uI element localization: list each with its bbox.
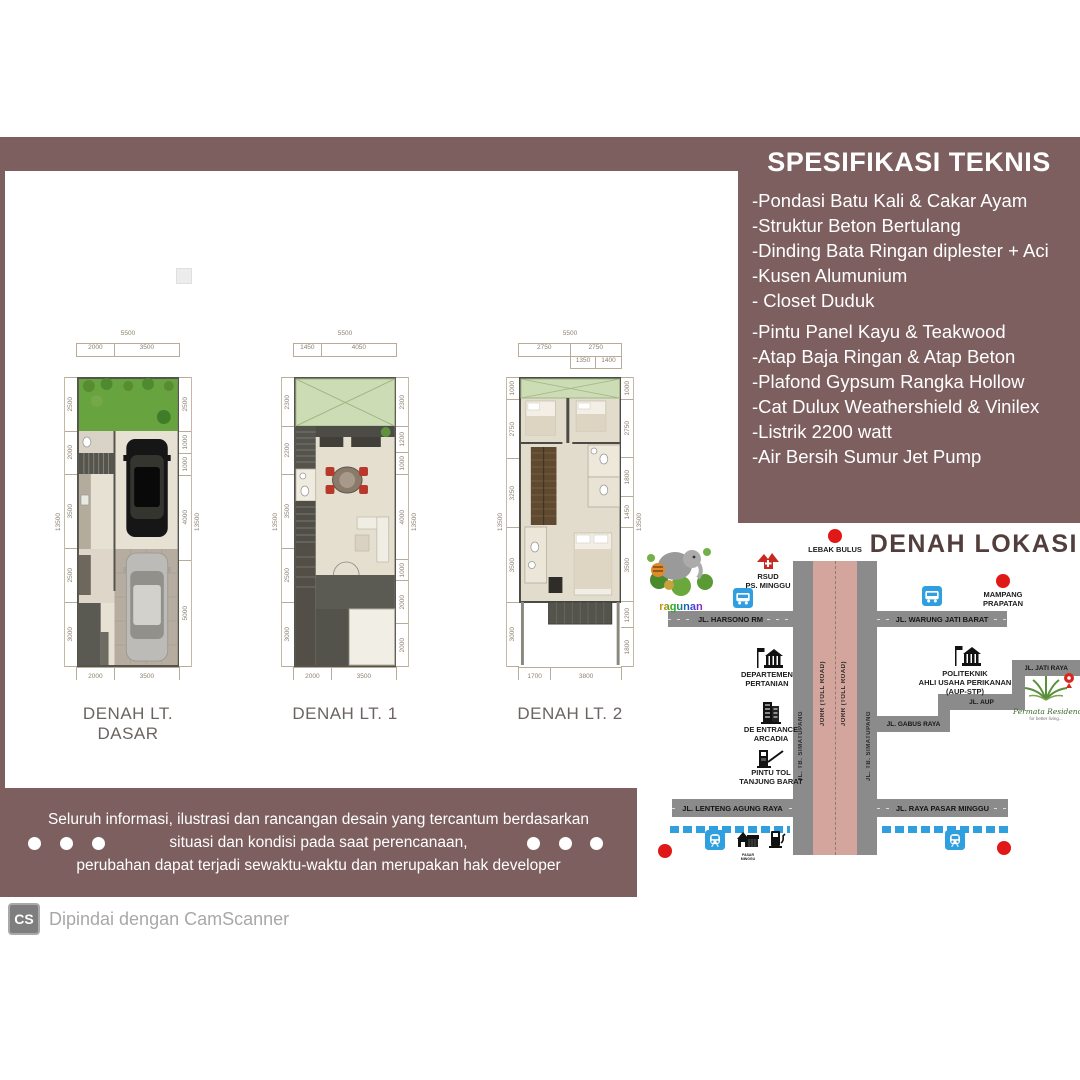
dimension-total-height: 13500 bbox=[496, 377, 507, 667]
permata-residence-name: Permata Residence bbox=[1013, 707, 1079, 716]
decor-dot bbox=[527, 837, 540, 850]
label-de-entrance: DE ENTRANCE ARCADIA bbox=[741, 725, 801, 743]
dimension-label: 5000 bbox=[179, 560, 191, 667]
road-tb-simatupang: JORR (TOLL ROAD) JORR (TOLL ROAD) JL. TB… bbox=[793, 561, 877, 855]
plan-caption-level2: DENAH LT. 2 bbox=[496, 704, 644, 724]
dimension-label: 1700 bbox=[518, 667, 550, 680]
permata-residence-tagline: for better living... bbox=[1013, 716, 1079, 721]
spec-panel: SPESIFIKASI TEKNIS -Pondasi Batu Kali & … bbox=[738, 137, 1080, 523]
road-raya-pasar-minggu: JL. RAYA PASAR MINGGU bbox=[877, 799, 1008, 817]
dimension-label: 2750 bbox=[518, 344, 570, 357]
road-label-tb-simatupang: JL. TB. SIMATUPANG bbox=[866, 711, 872, 781]
dimension-label: 1200 bbox=[621, 601, 633, 627]
dimension-label: 1350 bbox=[570, 357, 595, 369]
road-label-pasar-minggu: JL. RAYA PASAR MINGGU bbox=[893, 804, 992, 813]
dimension-total-width: 5500 bbox=[76, 330, 180, 344]
station-dot-left bbox=[658, 844, 672, 858]
dimension-label: 2750 bbox=[507, 399, 519, 458]
dimension-label: 1800 bbox=[621, 627, 633, 667]
road-label-harsono: JL. HARSONO RM bbox=[695, 615, 766, 624]
dimension-label: 3000 bbox=[507, 602, 519, 667]
label-lebak-bulus: LEBAK BULUS bbox=[800, 545, 870, 554]
label-mampang: MAMPANG PRAPATAN bbox=[971, 590, 1035, 608]
dimension-label: 1400 bbox=[595, 357, 622, 369]
dimension-label: 1000 bbox=[621, 377, 633, 399]
label-pintu-tol: PINTU TOL TANJUNG BARAT bbox=[737, 768, 805, 786]
left-accent-strip bbox=[0, 137, 5, 788]
spec-item: - Closet Duduk bbox=[752, 288, 1070, 313]
road-aup: JL. AUP bbox=[938, 694, 1025, 710]
rsud-icon bbox=[755, 550, 781, 572]
ragunan-logo: ragunan bbox=[645, 540, 717, 613]
dimension-label: 2000 bbox=[65, 431, 77, 474]
dimension-bottom-row: 17003800 bbox=[518, 667, 622, 680]
dimension-label: 2750 bbox=[570, 344, 623, 357]
gas-station-icon bbox=[769, 829, 787, 848]
dimension-top-sub-row: 13501400 bbox=[570, 357, 622, 369]
dimension-total-height: 13500 bbox=[54, 377, 65, 667]
dimension-label: 3800 bbox=[550, 667, 622, 680]
ragunan-zoo-illustration bbox=[645, 540, 717, 596]
spec-item: -Pondasi Batu Kali & Cakar Ayam bbox=[752, 188, 1070, 213]
road-label-jati-raya: JL. JATI RAYA bbox=[1024, 665, 1068, 672]
dimension-label: 3000 bbox=[282, 602, 294, 667]
road-gabus-raya: JL. GABUS RAYA bbox=[877, 716, 950, 732]
train-station-icon bbox=[705, 830, 725, 850]
dimension-label: 2750 bbox=[621, 399, 633, 457]
dimension-bottom-row: 20003500 bbox=[293, 667, 397, 680]
decor-dot bbox=[559, 837, 572, 850]
dimension-total-height: 13500 bbox=[191, 377, 202, 667]
bus-stop-icon bbox=[733, 588, 753, 608]
politeknik-icon bbox=[951, 644, 981, 668]
station-dot-right bbox=[997, 841, 1011, 855]
spec-item: -Pintu Panel Kayu & Teakwood bbox=[752, 319, 1070, 344]
ragunan-logo-text: ragunan bbox=[645, 601, 717, 613]
dimension-left-stack: 23002200350025003000 bbox=[282, 377, 294, 667]
dimension-label: 1000 bbox=[396, 452, 408, 474]
dimension-top-row: 20003500 bbox=[76, 344, 180, 357]
dimension-label: 3500 bbox=[282, 474, 294, 549]
spec-item: -Atap Baja Ringan & Atap Beton bbox=[752, 344, 1070, 369]
dimension-label: 3000 bbox=[65, 602, 77, 667]
dimension-total-height: 13500 bbox=[408, 377, 419, 667]
spec-item: -Struktur Beton Bertulang bbox=[752, 213, 1070, 238]
dimension-label: 1000 bbox=[179, 453, 191, 475]
dimension-label: 2300 bbox=[396, 377, 408, 426]
de-entrance-icon bbox=[760, 700, 782, 724]
dimension-label: 2000 bbox=[76, 667, 114, 680]
dimension-label: 1000 bbox=[507, 377, 519, 399]
floor-plan-ground-drawing bbox=[77, 377, 180, 667]
road-label-aup: JL. AUP bbox=[969, 699, 994, 706]
plan-caption-ground: DENAH LT. DASAR bbox=[54, 704, 202, 744]
dimension-label: 3250 bbox=[507, 458, 519, 527]
market-icon bbox=[735, 831, 761, 848]
dimension-label: 2000 bbox=[293, 667, 331, 680]
dimension-left-stack: 25002000350025003000 bbox=[65, 377, 77, 667]
dimension-bottom-row: 20003500 bbox=[76, 667, 180, 680]
label-departemen-pertanian: DEPARTEMEN PERTANIAN bbox=[733, 670, 801, 688]
spec-item: -Air Bersih Sumur Jet Pump bbox=[752, 444, 1070, 469]
dimension-label: 1800 bbox=[621, 457, 633, 496]
brochure-page: SPESIFIKASI TEKNIS -Pondasi Batu Kali & … bbox=[0, 0, 1080, 1080]
departemen-pertanian-icon bbox=[753, 646, 783, 670]
dimension-total-width: 5500 bbox=[518, 330, 622, 344]
dimension-label: 1450 bbox=[621, 496, 633, 527]
spec-item: -Kusen Alumunium bbox=[752, 263, 1070, 288]
permata-residence-logo: Permata Residence for better living... bbox=[1013, 672, 1079, 721]
dimension-total-height: 13500 bbox=[633, 377, 644, 667]
palm-illustration bbox=[1013, 672, 1079, 702]
dimension-label: 4000 bbox=[179, 475, 191, 560]
dimension-label: 4050 bbox=[321, 344, 397, 357]
dimension-label: 2500 bbox=[65, 377, 77, 431]
dimension-total-height: 13500 bbox=[271, 377, 282, 667]
spec-item: -Listrik 2200 watt bbox=[752, 419, 1070, 444]
location-map: DENAH LOKASI JORR (TOLL ROAD) JORR (TOLL… bbox=[645, 528, 1080, 900]
label-pasar-minggu-market: PASAR MINGGU bbox=[735, 853, 761, 861]
disclaimer-line1: Seluruh informasi, ilustrasi dan rancang… bbox=[48, 811, 589, 829]
dimension-right-stack: 2300120010004000100020002000 bbox=[396, 377, 408, 667]
dimension-label: 2300 bbox=[282, 377, 294, 426]
dimension-right-stack: 25001000100040005000 bbox=[179, 377, 191, 667]
dimension-left-stack: 10002750325035003000 bbox=[507, 377, 519, 667]
dimension-label: 3500 bbox=[507, 527, 519, 602]
floor-plan-level2: 5500 27502750 13501400 13500 10002750325… bbox=[496, 330, 644, 740]
road-harsono: JL. HARSONO RM bbox=[668, 611, 793, 627]
dimension-label: 4000 bbox=[396, 474, 408, 559]
camscanner-footer: CS Dipindai dengan CamScanner bbox=[8, 903, 289, 935]
dimension-label: 2000 bbox=[76, 344, 114, 357]
scan-artifact-square bbox=[176, 268, 192, 284]
dimension-label: 1000 bbox=[396, 559, 408, 581]
plan-caption-level1: DENAH LT. 1 bbox=[271, 704, 419, 724]
label-politeknik: POLITEKNIK AHLI USAHA PERIKANAN (AUP-STP… bbox=[917, 669, 1013, 696]
road-lenteng-agung: JL. LENTENG AGUNG RAYA bbox=[672, 799, 793, 817]
dimension-top-row: 14504050 bbox=[293, 344, 397, 357]
dimension-label: 2500 bbox=[282, 548, 294, 602]
dimension-label: 1450 bbox=[293, 344, 321, 357]
spec-item: -Plafond Gypsum Rangka Hollow bbox=[752, 369, 1070, 394]
dimension-label: 3500 bbox=[114, 344, 180, 357]
spec-list: -Pondasi Batu Kali & Cakar Ayam-Struktur… bbox=[738, 188, 1080, 469]
decor-dot bbox=[28, 837, 41, 850]
floor-plan-level2-drawing bbox=[519, 377, 622, 667]
dimension-total-width: 5500 bbox=[293, 330, 397, 344]
dimension-label: 2000 bbox=[396, 623, 408, 667]
road-label-gabus-raya: JL. GABUS RAYA bbox=[887, 721, 941, 728]
road-label-jorr: JORR (TOLL ROAD) bbox=[820, 661, 826, 726]
dimension-label: 1200 bbox=[396, 426, 408, 452]
spec-item: -Cat Dulux Weathershield & Vinilex bbox=[752, 394, 1070, 419]
dimension-top-row: 27502750 bbox=[518, 344, 622, 357]
dimension-label: 2000 bbox=[396, 580, 408, 623]
dimension-right-stack: 1000275018001450350012001800 bbox=[621, 377, 633, 667]
dimension-label: 1000 bbox=[179, 431, 191, 453]
dimension-label: 3500 bbox=[114, 667, 180, 680]
camscanner-badge: CS bbox=[8, 903, 40, 935]
spec-title: SPESIFIKASI TEKNIS bbox=[738, 147, 1080, 178]
floor-plan-ground: 5500 20003500 13500 25002000350025003000 bbox=[54, 330, 202, 740]
pasar-minggu-market: PASAR MINGGU bbox=[735, 831, 765, 861]
road-warung-jati: JL. WARUNG JATI BARAT bbox=[877, 611, 1007, 627]
dimension-label: 3500 bbox=[621, 527, 633, 601]
train-station-icon bbox=[945, 830, 965, 850]
dimension-label: 2500 bbox=[179, 377, 191, 431]
decor-dot bbox=[92, 837, 105, 850]
disclaimer-line2: situasi dan kondisi pada saat perencanaa… bbox=[169, 834, 467, 852]
lebak-bulus-dot bbox=[828, 529, 842, 543]
dimension-label: 2200 bbox=[282, 426, 294, 473]
floor-plan-level1: 5500 14504050 13500 23002200350025003000 bbox=[271, 330, 419, 740]
map-title: DENAH LOKASI bbox=[870, 530, 1078, 559]
road-label-warung-jati: JL. WARUNG JATI BARAT bbox=[893, 615, 992, 624]
bus-stop-icon bbox=[922, 586, 942, 606]
spec-item: -Dinding Bata Ringan diplester + Aci bbox=[752, 238, 1070, 263]
road-label-jorr: JORR (TOLL ROAD) bbox=[841, 661, 847, 726]
dimension-label: 2500 bbox=[65, 548, 77, 602]
dimension-label: 3500 bbox=[331, 667, 397, 680]
road-label-lenteng: JL. LENTENG AGUNG RAYA bbox=[679, 804, 785, 813]
dimension-label: 3500 bbox=[65, 474, 77, 549]
mampang-dot bbox=[996, 574, 1010, 588]
camscanner-text: Dipindai dengan CamScanner bbox=[49, 909, 289, 930]
disclaimer-line3: perubahan dapat terjadi sewaktu-waktu da… bbox=[76, 857, 560, 875]
decor-dot bbox=[590, 837, 603, 850]
pintu-tol-icon bbox=[757, 746, 785, 768]
decor-dot bbox=[60, 837, 73, 850]
floor-plan-level1-drawing bbox=[294, 377, 397, 667]
